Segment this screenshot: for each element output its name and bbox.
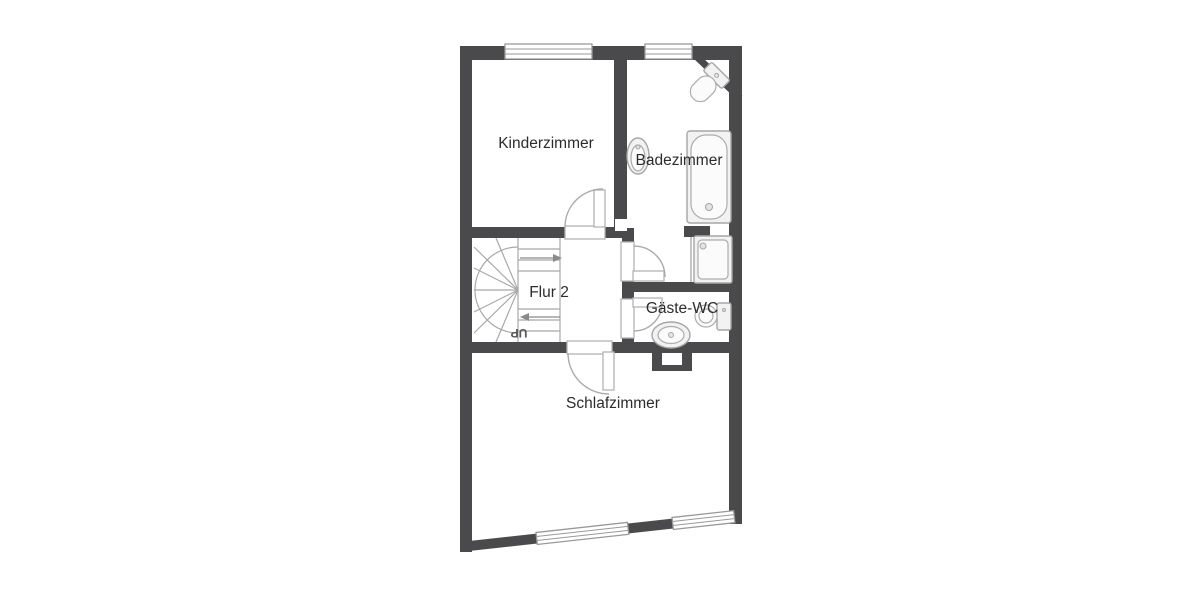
room-label-gaeste-wc: Gäste-WC [646,300,718,317]
floor-plan-page: UP [0,0,1200,600]
door-badezimmer [621,242,665,281]
room-label-schlafzimmer: Schlafzimmer [566,395,660,412]
wall-left [460,46,472,552]
door-schlafzimmer [567,341,614,394]
room-label-badezimmer: Badezimmer [636,152,723,169]
window-kinderzimmer [505,44,592,59]
window-schlafzimmer-left [536,522,629,544]
duct-notch [615,219,627,231]
room-label-flur: Flur 2 [529,284,569,301]
stair-up-label: UP [511,326,528,340]
wall-kinderzimmer-flur [472,227,565,238]
door-kinderzimmer [565,189,605,239]
bathtub-icon [687,131,731,223]
wall-kinderzimmer-badezimmer [614,56,627,231]
walls [460,46,742,552]
oval-washbasin-icon [652,322,690,348]
floor-plan: UP [0,0,1200,600]
shower-icon [691,236,732,283]
shaft-opening [662,353,682,365]
window-schlafzimmer-right [672,511,735,530]
wall-flur-schlafzimmer [472,342,568,353]
corner-toilet-icon [684,62,730,108]
room-label-kinderzimmer: Kinderzimmer [498,135,594,152]
window-badezimmer [645,44,692,59]
